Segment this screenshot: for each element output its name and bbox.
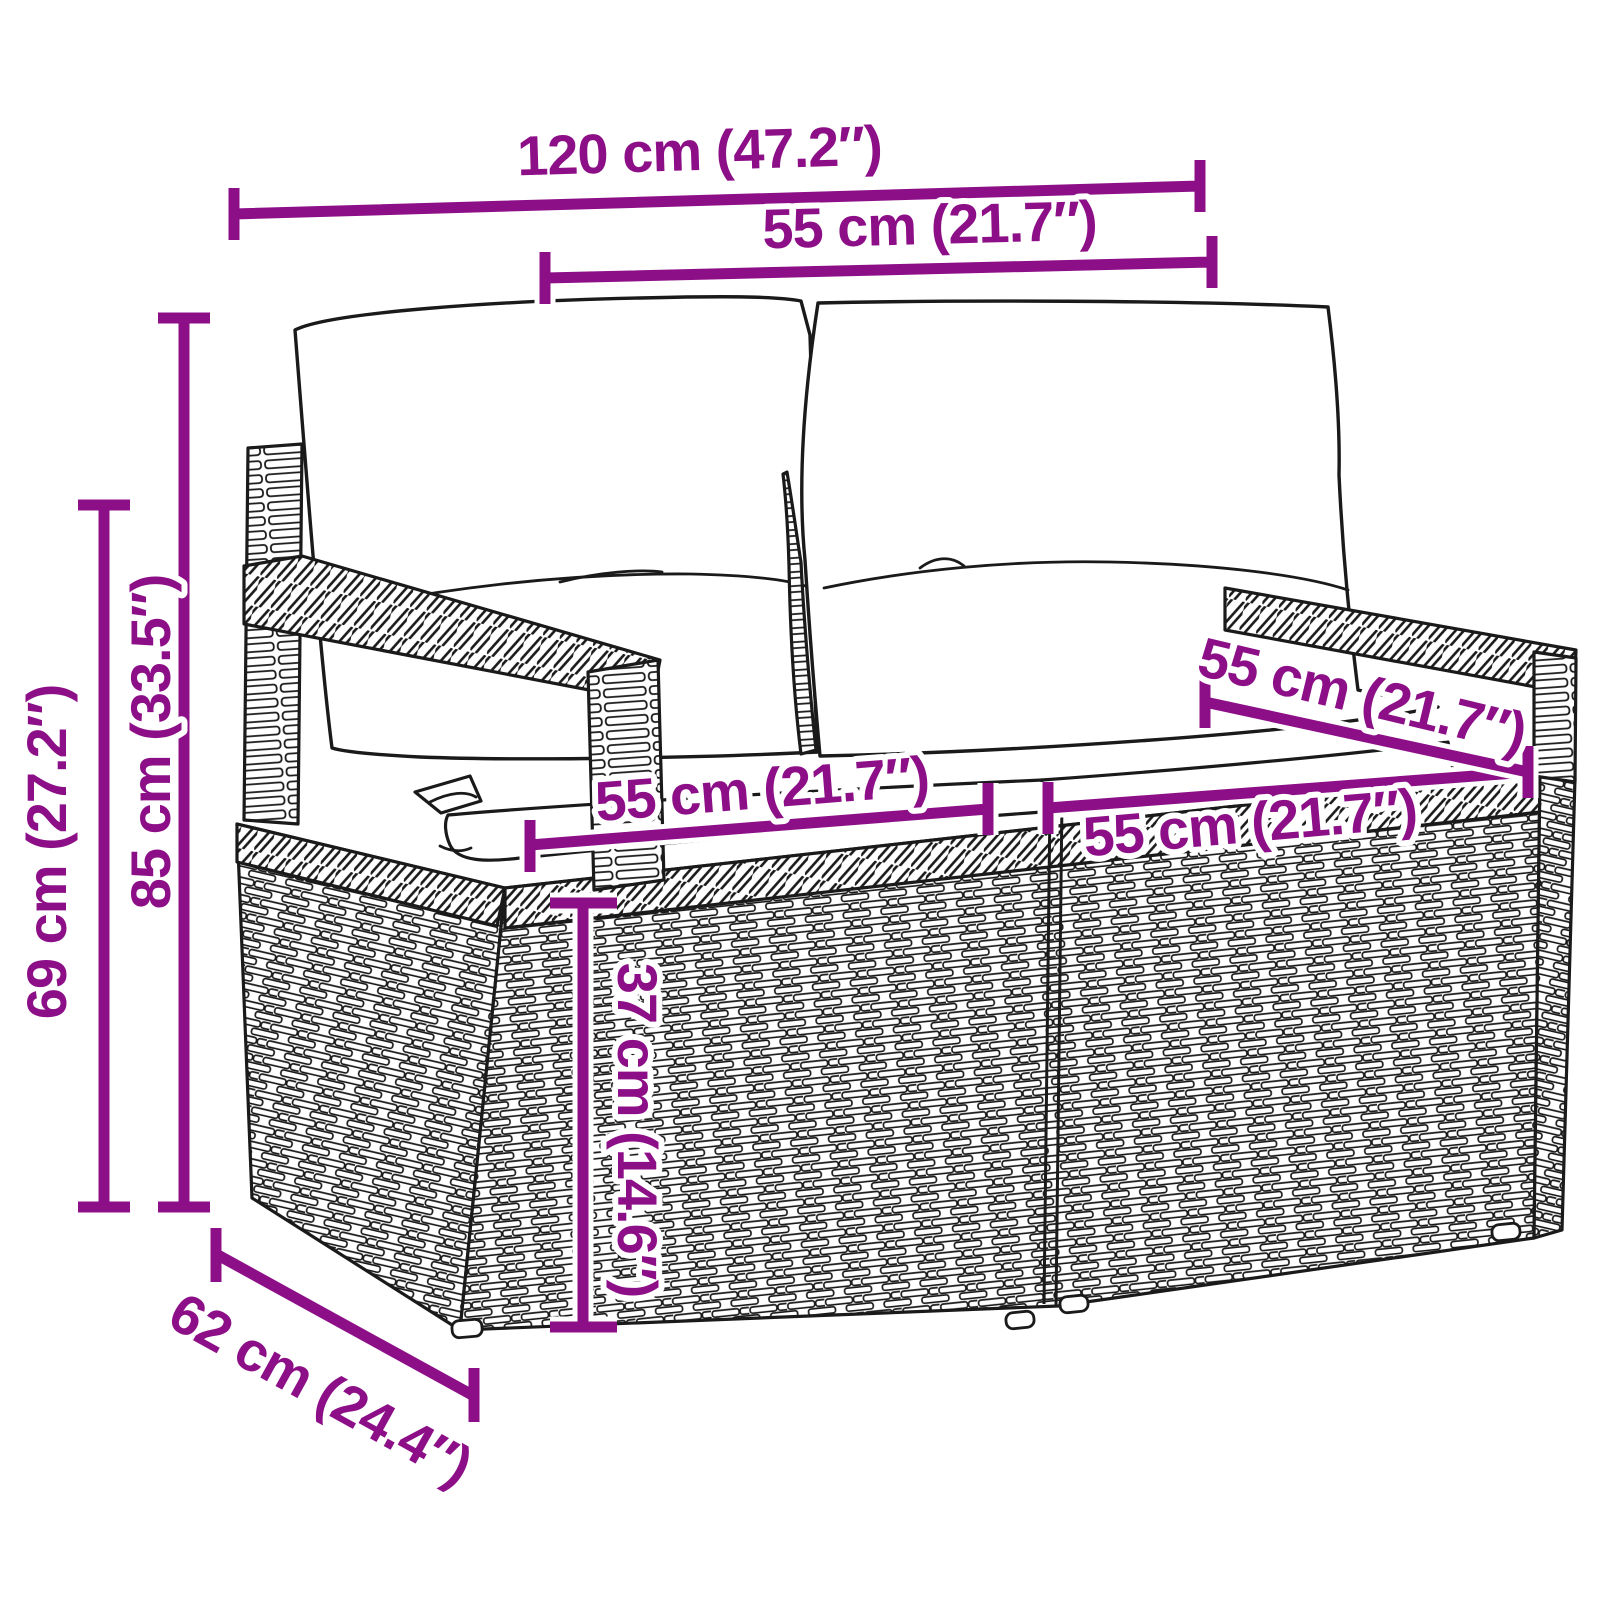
dimension-diagram-page: 120 cm (47.2″) 55 cm (21.7″) 85 cm (33.5… (0, 0, 1600, 1600)
dimension-label-back-cushion-width: 55 cm (21.7″) (761, 189, 1097, 261)
bench-foot (1005, 1311, 1035, 1330)
dimension-label-total-height: 85 cm (33.5″) (119, 575, 182, 909)
back-cushion-left (295, 297, 818, 759)
dimension-label-armrest-height: 69 cm (27.2″) (15, 685, 78, 1019)
bench-foot (1491, 1223, 1521, 1242)
right-armrest-outer-post (1534, 652, 1576, 782)
dimension-label-overall-width: 120 cm (47.2″) (516, 114, 882, 188)
dimension-label-seat-height: 37 cm (14.6″) (606, 963, 669, 1297)
bench-foot (1059, 1295, 1089, 1314)
base-right-side-face (1534, 772, 1575, 1238)
bench-foot (451, 1319, 482, 1339)
garden-bench-dimension-diagram: 120 cm (47.2″) 55 cm (21.7″) 85 cm (33.5… (0, 0, 1600, 1600)
